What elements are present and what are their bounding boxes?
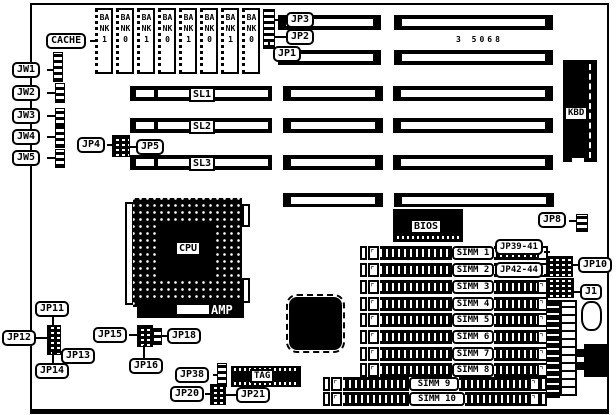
callout-jp8: JP8	[538, 212, 566, 228]
simm-end	[360, 347, 367, 361]
isa-slot-opening	[291, 90, 375, 97]
callout-jp14: JP14	[35, 363, 69, 379]
simm-socket	[380, 363, 452, 377]
callout-jp10: JP10	[578, 257, 612, 273]
callout-jp15: JP15	[93, 327, 127, 343]
callout-jp13: JP13	[61, 348, 95, 364]
simm-clip: ⌜	[368, 297, 379, 311]
simm-socket	[494, 347, 537, 361]
simm-clip: ⌜	[368, 280, 379, 294]
callout-jw5: JW5	[12, 150, 40, 166]
wire-jp3	[274, 19, 286, 21]
bank-chip-5: BANK1	[179, 8, 197, 74]
label-simm5: SIMM 5	[452, 313, 494, 327]
callout-jp12: JP12	[2, 330, 36, 346]
wire-jp1	[268, 40, 270, 47]
wire-jw1	[47, 69, 53, 71]
label-simm4: SIMM 4	[452, 297, 494, 311]
kbd-notch	[572, 158, 584, 162]
isa-slot-opening	[136, 122, 154, 129]
label-amp: AMP	[211, 303, 233, 317]
wire-jp4	[107, 144, 112, 146]
simm-socket	[380, 246, 452, 260]
simm-end	[360, 263, 367, 277]
isa-slot-opening	[291, 159, 375, 166]
callout-jp39-41: JP39-41	[495, 239, 543, 255]
simm-end	[323, 392, 330, 406]
isa-slot-opening	[401, 122, 545, 129]
wire-jp15	[129, 334, 137, 336]
bios-pin-row	[397, 236, 459, 239]
simm-clip: ⌜	[368, 263, 379, 277]
callout-jp1: JP1	[273, 46, 301, 62]
wire-jp8	[569, 220, 576, 222]
callout-jp21: JP21	[236, 387, 270, 403]
callout-jp16: JP16	[129, 358, 163, 374]
label-bios: BIOS	[410, 219, 442, 234]
wire-jp39-41	[544, 251, 550, 253]
simm-socket	[380, 297, 452, 311]
simm-clip: ⌜	[368, 313, 379, 327]
bank-chip-8: BANK0	[242, 8, 260, 74]
motherboard-diagram: 3 5068 CACHE BANK1 BANK0 BANK1 BANK0 BAN…	[0, 0, 616, 415]
jumper-cap-outline	[581, 301, 602, 331]
isa-slot-opening	[136, 90, 154, 97]
isa-slot-opening	[401, 159, 545, 166]
label-cpu: CPU	[175, 241, 201, 256]
wire-jp12	[36, 337, 47, 339]
simm-socket	[380, 347, 452, 361]
callout-jw4: JW4	[12, 129, 40, 145]
callout-jp42-44: JP42-44	[495, 262, 543, 278]
label-simm6: SIMM 6	[452, 330, 494, 344]
wire-jw5	[47, 157, 55, 159]
label-sl1: SL1	[189, 87, 215, 102]
isa-slot-opening	[136, 159, 154, 166]
label-simm8: SIMM 8	[452, 363, 494, 377]
isa-slot-opening	[402, 19, 545, 26]
isa-slot-opening	[291, 197, 375, 204]
simm-socket	[494, 313, 537, 327]
simm-end	[360, 297, 367, 311]
label-simm10: SIMM 10	[409, 392, 465, 406]
callout-jw1: JW1	[12, 62, 40, 78]
edge-connector	[584, 344, 608, 377]
wire-jp5	[128, 146, 136, 148]
simm-socket	[380, 313, 452, 327]
cpu-right-tab-top	[242, 204, 250, 227]
label-sl3: SL3	[189, 156, 215, 171]
label-simm3: SIMM 3	[452, 280, 494, 294]
jumper-jw1	[53, 52, 63, 82]
amp-connector-window	[177, 305, 209, 314]
callout-jp4: JP4	[77, 137, 105, 153]
wire-jp2	[274, 36, 286, 38]
wire-j1	[572, 291, 580, 293]
simm-end	[360, 246, 367, 260]
simm-end	[360, 280, 367, 294]
wire-jp21	[224, 394, 236, 396]
kbd-dashed-line	[589, 64, 591, 158]
simm-end	[323, 377, 330, 391]
label-simm9: SIMM 9	[409, 377, 459, 391]
simm-clip: ⌝	[529, 392, 540, 406]
bank-chip-4: BANK0	[158, 8, 176, 74]
isa-slot-opening	[401, 90, 545, 97]
edge-connector-tab	[577, 362, 585, 370]
callout-j1: J1	[580, 284, 602, 300]
simm-clip: ⌜	[368, 347, 379, 361]
wire-cache	[90, 40, 97, 42]
jumper-jp39-41	[546, 256, 573, 277]
jumper-jp15	[137, 325, 153, 347]
simm-socket	[343, 392, 409, 406]
simm-socket	[380, 263, 452, 277]
simm-clip: ⌜	[331, 377, 342, 391]
label-kbd: KBD	[564, 106, 588, 121]
callout-jw3: JW3	[12, 108, 40, 124]
callout-cache: CACHE	[46, 33, 86, 49]
simm-socket	[343, 377, 409, 391]
power-connector-pins	[546, 300, 560, 398]
callout-jp3: JP3	[286, 12, 314, 28]
wire-jw2	[47, 92, 55, 94]
isa-slot-opening	[402, 54, 545, 61]
label-simm1: SIMM 1	[452, 246, 494, 260]
simm-socket	[494, 330, 537, 344]
wire-jp10	[571, 264, 578, 266]
isa-slot-opening	[291, 122, 375, 129]
simm-socket	[380, 330, 452, 344]
simm-clip: ⌜	[331, 392, 342, 406]
wire-jp11	[52, 316, 54, 325]
cpu-right-tab-bottom	[242, 278, 250, 303]
simm-socket	[494, 363, 537, 377]
wire-jw4	[47, 136, 55, 138]
jumper-j1	[546, 278, 574, 298]
callout-jp2: JP2	[286, 29, 314, 45]
callout-jp20: JP20	[170, 386, 204, 402]
simm-clip: ⌝	[529, 377, 540, 391]
callout-jp18: JP18	[167, 328, 201, 344]
wire-jp42-44	[544, 274, 550, 276]
wire-jp20	[205, 393, 210, 395]
wire-jp16	[143, 345, 145, 358]
simm-socket	[459, 377, 529, 391]
qfp-chip	[289, 297, 342, 350]
bank-chip-1: BANK1	[95, 8, 113, 74]
simm-socket	[465, 392, 529, 406]
bank-chip-2: BANK0	[116, 8, 134, 74]
wire-jw3	[47, 115, 55, 117]
simm-socket	[494, 297, 537, 311]
jumper-jw5	[55, 149, 65, 168]
simm-end	[360, 363, 367, 377]
simm-socket	[380, 280, 452, 294]
jumper-jw2	[55, 83, 65, 103]
simm-end	[360, 330, 367, 344]
jumper-jw3	[55, 108, 65, 127]
board-part-number: 3 5068	[456, 35, 503, 44]
callout-jp11: JP11	[35, 301, 69, 317]
wire-jp38	[213, 374, 217, 376]
jumper-jp8	[576, 214, 588, 232]
bank-chip-7: BANK1	[221, 8, 239, 74]
wire-jp18	[160, 335, 167, 337]
simm-clip: ⌜	[368, 246, 379, 260]
bank-chip-3: BANK1	[137, 8, 155, 74]
simm-clip: ⌜	[368, 330, 379, 344]
isa-slot-opening	[402, 197, 546, 204]
label-sl2: SL2	[189, 119, 215, 134]
bank-chip-6: BANK0	[200, 8, 218, 74]
simm-end	[360, 313, 367, 327]
label-tag: TAG	[250, 369, 274, 383]
simm-clip: ⌜	[368, 363, 379, 377]
jumper-jw4	[55, 127, 65, 148]
callout-jp5: JP5	[136, 139, 164, 155]
label-simm7: SIMM 7	[452, 347, 494, 361]
label-simm2: SIMM 2	[452, 263, 494, 277]
power-connector-housing	[560, 300, 577, 396]
simm-socket	[494, 280, 537, 294]
callout-jw2: JW2	[12, 85, 40, 101]
edge-connector-tab	[577, 349, 585, 357]
callout-jp38: JP38	[175, 367, 209, 383]
